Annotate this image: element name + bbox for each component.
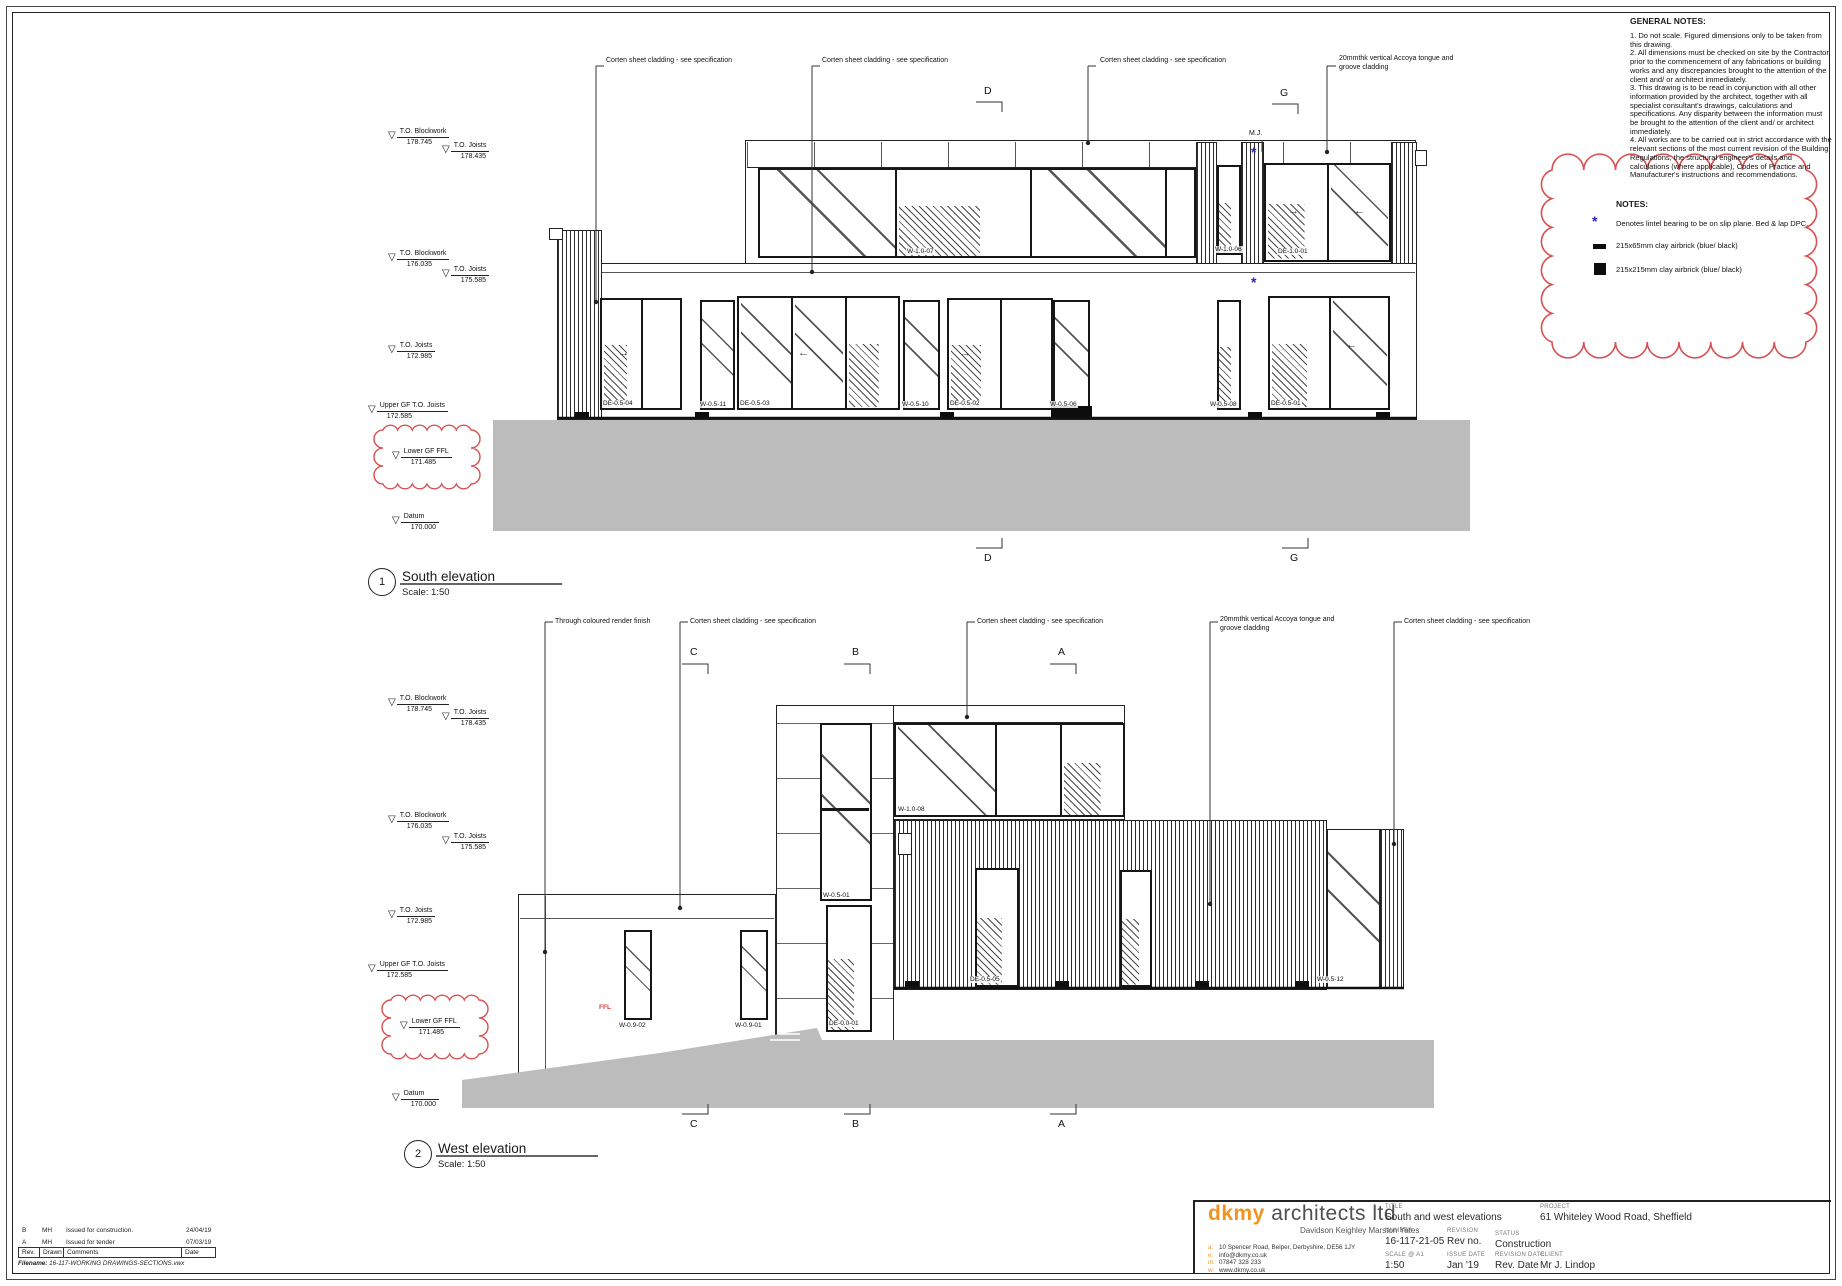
field-label-project: PROJECT — [1540, 1204, 1570, 1210]
window-label: DE-0.5-01 — [1270, 400, 1302, 407]
field-revision: Rev no. — [1447, 1236, 1481, 1247]
general-notes: GENERAL NOTES: 1. Do not scale. Figured … — [1630, 16, 1832, 180]
notes-item: 215x215mm clay airbrick (blue/ black) — [1616, 265, 1742, 274]
slide-arrow: ← — [1346, 340, 1357, 351]
lintel-asterisk: * — [1251, 146, 1256, 158]
filename: Filename: 16-117-WORKING DRAWINGS-SECTIO… — [18, 1260, 184, 1267]
notes-item: Denotes lintel bearing to be on slip pla… — [1616, 219, 1808, 228]
drawing-sheet: { "colors": { "accent_orange": "#f0941e"… — [0, 0, 1842, 1286]
firm-brand: dkmy — [1208, 1202, 1265, 1225]
blue-asterisk-icon: * — [1592, 215, 1597, 227]
window-label: DE-0.5-02 — [949, 400, 981, 407]
window-label: W-0.5-12 — [1316, 976, 1345, 983]
field-project: 61 Whiteley Wood Road, Sheffield — [1540, 1212, 1692, 1223]
callout: Through coloured render finish — [555, 618, 650, 627]
callout: 20mmthk vertical Accoya tongue and groov… — [1339, 55, 1453, 72]
slide-arrow: ← — [798, 348, 809, 359]
view-scale: Scale: 1:50 — [438, 1159, 486, 1170]
section-marker: D — [984, 552, 992, 564]
section-marker: A — [1058, 646, 1065, 658]
level-marker: ▽T.O. Joists172.985 — [388, 342, 435, 361]
field-issue-date: Jan '19 — [1447, 1260, 1479, 1271]
level-marker: ▽T.O. Blockwork176.035 — [388, 812, 449, 831]
callout: Corten sheet cladding - see specificatio… — [822, 57, 948, 66]
window-label: DE-0.5-03 — [739, 400, 771, 407]
window-label: W-0.9-02 — [618, 1022, 647, 1029]
notes-item: 215x65mm clay airbrick (blue/ black) — [1616, 241, 1738, 250]
window-label: W-0.5-10 — [901, 401, 930, 408]
general-notes-title: GENERAL NOTES: — [1630, 16, 1832, 26]
firm-contact: a:10 Spencer Road, Belper, Derbyshire, D… — [1208, 1244, 1355, 1274]
level-marker: ▽T.O. Joists175.585 — [442, 266, 489, 285]
field-label-issue-date: ISSUE DATE — [1447, 1252, 1485, 1258]
section-marker: A — [1058, 1118, 1065, 1130]
view-scale: Scale: 1:50 — [402, 587, 450, 598]
level-marker: ▽Upper GF T.O. Joists172.585 — [368, 402, 448, 421]
level-marker: ▽T.O. Joists175.585 — [442, 833, 489, 852]
linework-svg — [0, 0, 1842, 1286]
slide-arrow: → — [1288, 206, 1299, 217]
slide-arrow: → — [960, 348, 971, 359]
field-label-status: STATUS — [1495, 1231, 1520, 1237]
slide-arrow: → — [618, 348, 629, 359]
level-marker: ▽T.O. Blockwork176.035 — [388, 250, 449, 269]
window-label: W-0.9-01 — [734, 1022, 763, 1029]
section-marker: G — [1290, 552, 1298, 564]
airbrick-small-icon — [1593, 244, 1606, 249]
window-label: W-0.5-08 — [1209, 401, 1238, 408]
field-label-number: NUMBER — [1385, 1228, 1413, 1234]
mj-label: M.J. — [1248, 130, 1263, 137]
level-marker: ▽T.O. Blockwork178.745 — [388, 128, 449, 147]
level-marker: ▽T.O. Joists172.985 — [388, 907, 435, 926]
field-label-client: CLIENT — [1540, 1252, 1563, 1258]
titleblock-divider — [1193, 1200, 1195, 1274]
section-marker: B — [852, 1118, 859, 1130]
window-label: W-0.5-06 — [1049, 401, 1078, 408]
callout: Corten sheet cladding - see specificatio… — [1100, 57, 1226, 66]
level-marker: ▽T.O. Joists178.435 — [442, 709, 489, 728]
airbrick-large-icon — [1594, 263, 1606, 275]
slide-arrow: ← — [1354, 206, 1365, 217]
level-marker: ▽Upper GF T.O. Joists172.585 — [368, 961, 448, 980]
lintel-asterisk: * — [1251, 276, 1256, 288]
view-title: West elevation — [438, 1141, 526, 1156]
section-marker: D — [984, 85, 992, 97]
window-label: DE-0.5-04 — [602, 400, 634, 407]
field-status: Construction — [1495, 1239, 1551, 1250]
notes-cloud — [1541, 154, 1816, 358]
callout: 20mmthk vertical Accoya tongue and groov… — [1220, 616, 1334, 633]
field-scale: 1:50 — [1385, 1260, 1404, 1271]
window-label: DE-0.5-05 — [969, 976, 1001, 983]
field-label-revision: REVISION — [1447, 1228, 1478, 1234]
window-label: DE-1.0-01 — [1277, 248, 1309, 255]
notes-box-title: NOTES: — [1616, 199, 1648, 209]
callout: Corten sheet cladding - see specificatio… — [690, 618, 816, 627]
revision-table-header: Rev. Drawn Comments Date — [18, 1247, 216, 1258]
field-label-revision-date: REVISION DATE — [1495, 1252, 1545, 1258]
general-notes-body: 1. Do not scale. Figured dimensions only… — [1630, 32, 1832, 180]
section-marker: C — [690, 1118, 698, 1130]
section-marker: G — [1280, 87, 1288, 99]
window-label: W-1.0-07 — [906, 248, 935, 255]
firm-logo: dkmy architects ltd — [1208, 1202, 1396, 1226]
window-label: W-1.0-06 — [1214, 246, 1243, 253]
level-marker: ▽Datum170.000 — [392, 1090, 439, 1109]
callout: Corten sheet cladding - see specificatio… — [1404, 618, 1530, 627]
view-number-bubble: 2 — [404, 1140, 432, 1168]
field-number: 16-117-21-05 — [1385, 1236, 1444, 1247]
window-label: W-0.5-11 — [699, 401, 727, 408]
callout: Corten sheet cladding - see specificatio… — [977, 618, 1103, 627]
level-marker: ▽Lower GF FFL171.485 — [400, 1018, 460, 1037]
window-label: W-1.0-08 — [897, 806, 926, 813]
section-marker: C — [690, 646, 698, 658]
field-client: Mr J. Lindop — [1540, 1260, 1595, 1271]
level-marker: ▽Datum170.000 — [392, 513, 439, 532]
level-marker: ▽T.O. Blockwork178.745 — [388, 695, 449, 714]
level-marker: ▽T.O. Joists178.435 — [442, 142, 489, 161]
field-label-scale: SCALE @ A1 — [1385, 1252, 1424, 1258]
callout: Corten sheet cladding - see specificatio… — [606, 57, 732, 66]
window-label: DE-0.0-01 — [828, 1020, 860, 1027]
field-label-title: TITLE — [1385, 1204, 1403, 1210]
field-title: South and west elevations — [1385, 1212, 1502, 1223]
view-number-bubble: 1 — [368, 568, 396, 596]
view-title: South elevation — [402, 569, 495, 584]
ffl-red-note: FFL — [598, 1004, 612, 1011]
window-label: W-0.5-01 — [822, 892, 851, 899]
level-marker: ▽Lower GF FFL171.485 — [392, 448, 452, 467]
field-revision-date: Rev. Date — [1495, 1260, 1539, 1271]
section-marker: B — [852, 646, 859, 658]
